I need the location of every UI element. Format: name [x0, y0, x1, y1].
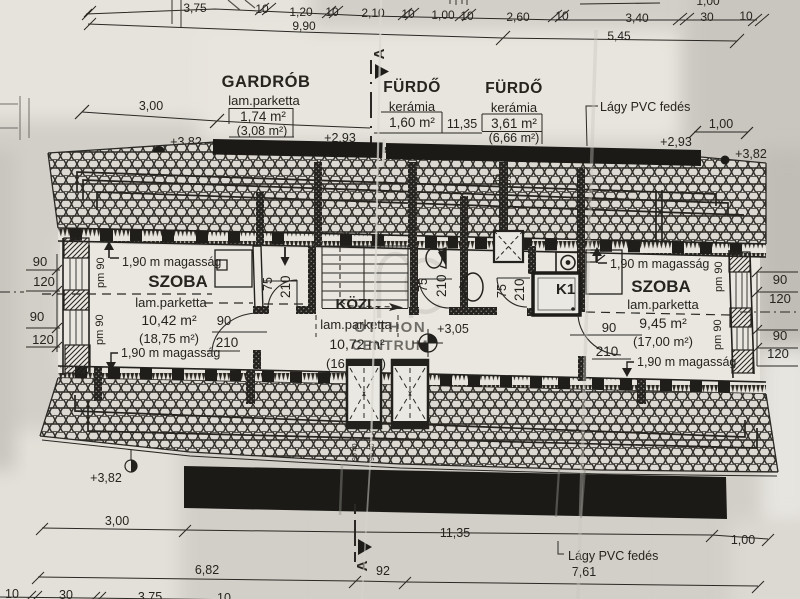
svg-text:30: 30 [59, 588, 73, 599]
svg-text:3,61 m²: 3,61 m² [491, 116, 537, 131]
svg-text:90: 90 [773, 272, 787, 287]
svg-text:10,72 m²: 10,72 m² [329, 336, 385, 352]
svg-text:10: 10 [401, 7, 415, 21]
svg-text:+2,93: +2,93 [660, 135, 692, 149]
svg-text:90: 90 [217, 313, 231, 328]
svg-text:10,42 m²: 10,42 m² [141, 312, 197, 328]
svg-text:pm 90: pm 90 [94, 314, 106, 345]
svg-text:lam.parketta: lam.parketta [135, 295, 207, 310]
svg-text:90: 90 [602, 320, 616, 335]
svg-text:pm 90: pm 90 [95, 257, 107, 288]
svg-text:(3,08 m²): (3,08 m²) [237, 124, 288, 138]
svg-text:FÜRDŐ: FÜRDŐ [485, 79, 543, 97]
svg-text:1,20: 1,20 [289, 5, 313, 19]
svg-text:90: 90 [30, 309, 44, 324]
svg-text:1,60 m²: 1,60 m² [389, 115, 435, 130]
svg-text:1,90 m magasság: 1,90 m magasság [637, 355, 736, 369]
svg-text:3,75: 3,75 [183, 1, 207, 15]
svg-text:210: 210 [512, 278, 527, 301]
svg-text:A: A [354, 560, 371, 571]
svg-text:120: 120 [33, 274, 55, 289]
svg-text:1,00: 1,00 [731, 533, 755, 547]
svg-text:+3,82: +3,82 [90, 471, 122, 485]
svg-text:210: 210 [278, 275, 293, 298]
svg-text:10: 10 [460, 9, 474, 23]
svg-text:30: 30 [700, 10, 714, 24]
svg-text:(6,66 m²): (6,66 m²) [489, 131, 540, 145]
svg-text:210: 210 [596, 344, 619, 359]
svg-text:Lágy PVC fedés: Lágy PVC fedés [600, 100, 690, 114]
svg-text:GARDRÓB: GARDRÓB [222, 72, 311, 91]
svg-text:1,00: 1,00 [431, 8, 455, 22]
svg-text:pm 90: pm 90 [712, 319, 724, 350]
svg-text:pm 90: pm 90 [713, 261, 725, 292]
svg-text:kerámia: kerámia [491, 100, 538, 115]
svg-text:SZOBA: SZOBA [631, 277, 691, 296]
svg-text:3,00: 3,00 [105, 514, 129, 528]
svg-text:90 40: 90 40 [352, 443, 359, 461]
svg-text:lam.parketta: lam.parketta [627, 297, 699, 312]
svg-text:90: 90 [33, 254, 47, 269]
svg-text:9,45 m²: 9,45 m² [639, 315, 687, 331]
svg-text:10: 10 [5, 587, 19, 599]
svg-text:69: 69 [503, 173, 514, 185]
svg-text:lam.parketta: lam.parketta [228, 93, 300, 108]
svg-text:11,35: 11,35 [447, 117, 477, 131]
svg-text:9,90: 9,90 [292, 19, 316, 33]
svg-text:(17,00 m²): (17,00 m²) [633, 334, 693, 349]
svg-text:1,00: 1,00 [709, 117, 733, 131]
svg-text:120: 120 [769, 291, 791, 306]
svg-text:3,75: 3,75 [138, 590, 162, 599]
svg-text:2,60: 2,60 [506, 10, 530, 24]
svg-text:K1: K1 [556, 281, 575, 298]
svg-text:1,74 m²: 1,74 m² [240, 109, 286, 124]
svg-text:+3,82: +3,82 [735, 147, 767, 161]
svg-text:7,61: 7,61 [572, 565, 596, 579]
svg-text:11,35: 11,35 [440, 526, 470, 540]
svg-text:210: 210 [434, 274, 449, 297]
svg-text:1,00: 1,00 [696, 0, 720, 8]
svg-text:SZOBA: SZOBA [148, 272, 208, 291]
svg-text:6,82: 6,82 [195, 563, 219, 577]
svg-text:10: 10 [739, 9, 753, 23]
svg-text:(18,75 m²): (18,75 m²) [139, 331, 199, 346]
svg-text:1,90 m magasság: 1,90 m magasság [610, 257, 709, 271]
svg-text:1,90 m magasság: 1,90 m magasság [122, 255, 221, 269]
svg-text:10: 10 [255, 2, 269, 16]
svg-text:3,00: 3,00 [139, 99, 163, 113]
svg-text:55: 55 [492, 173, 503, 185]
svg-text:Lágy PVC fedés: Lágy PVC fedés [568, 549, 658, 563]
svg-text:120: 120 [32, 332, 54, 347]
svg-text:10: 10 [217, 591, 231, 599]
svg-text:+3,05: +3,05 [437, 322, 469, 336]
svg-text:1,90 m magasság: 1,90 m magasság [121, 346, 220, 360]
svg-text:10: 10 [555, 9, 569, 23]
svg-text:5,45: 5,45 [607, 29, 631, 43]
svg-text:10: 10 [325, 5, 339, 19]
svg-text:92: 92 [376, 564, 390, 578]
svg-text:3,40: 3,40 [625, 11, 649, 25]
svg-text:lam.parketta: lam.parketta [320, 317, 392, 332]
svg-text:75: 75 [495, 284, 509, 298]
svg-text:FÜRDŐ: FÜRDŐ [383, 78, 441, 96]
svg-text:75: 75 [416, 278, 430, 292]
svg-text:75: 75 [261, 277, 275, 291]
